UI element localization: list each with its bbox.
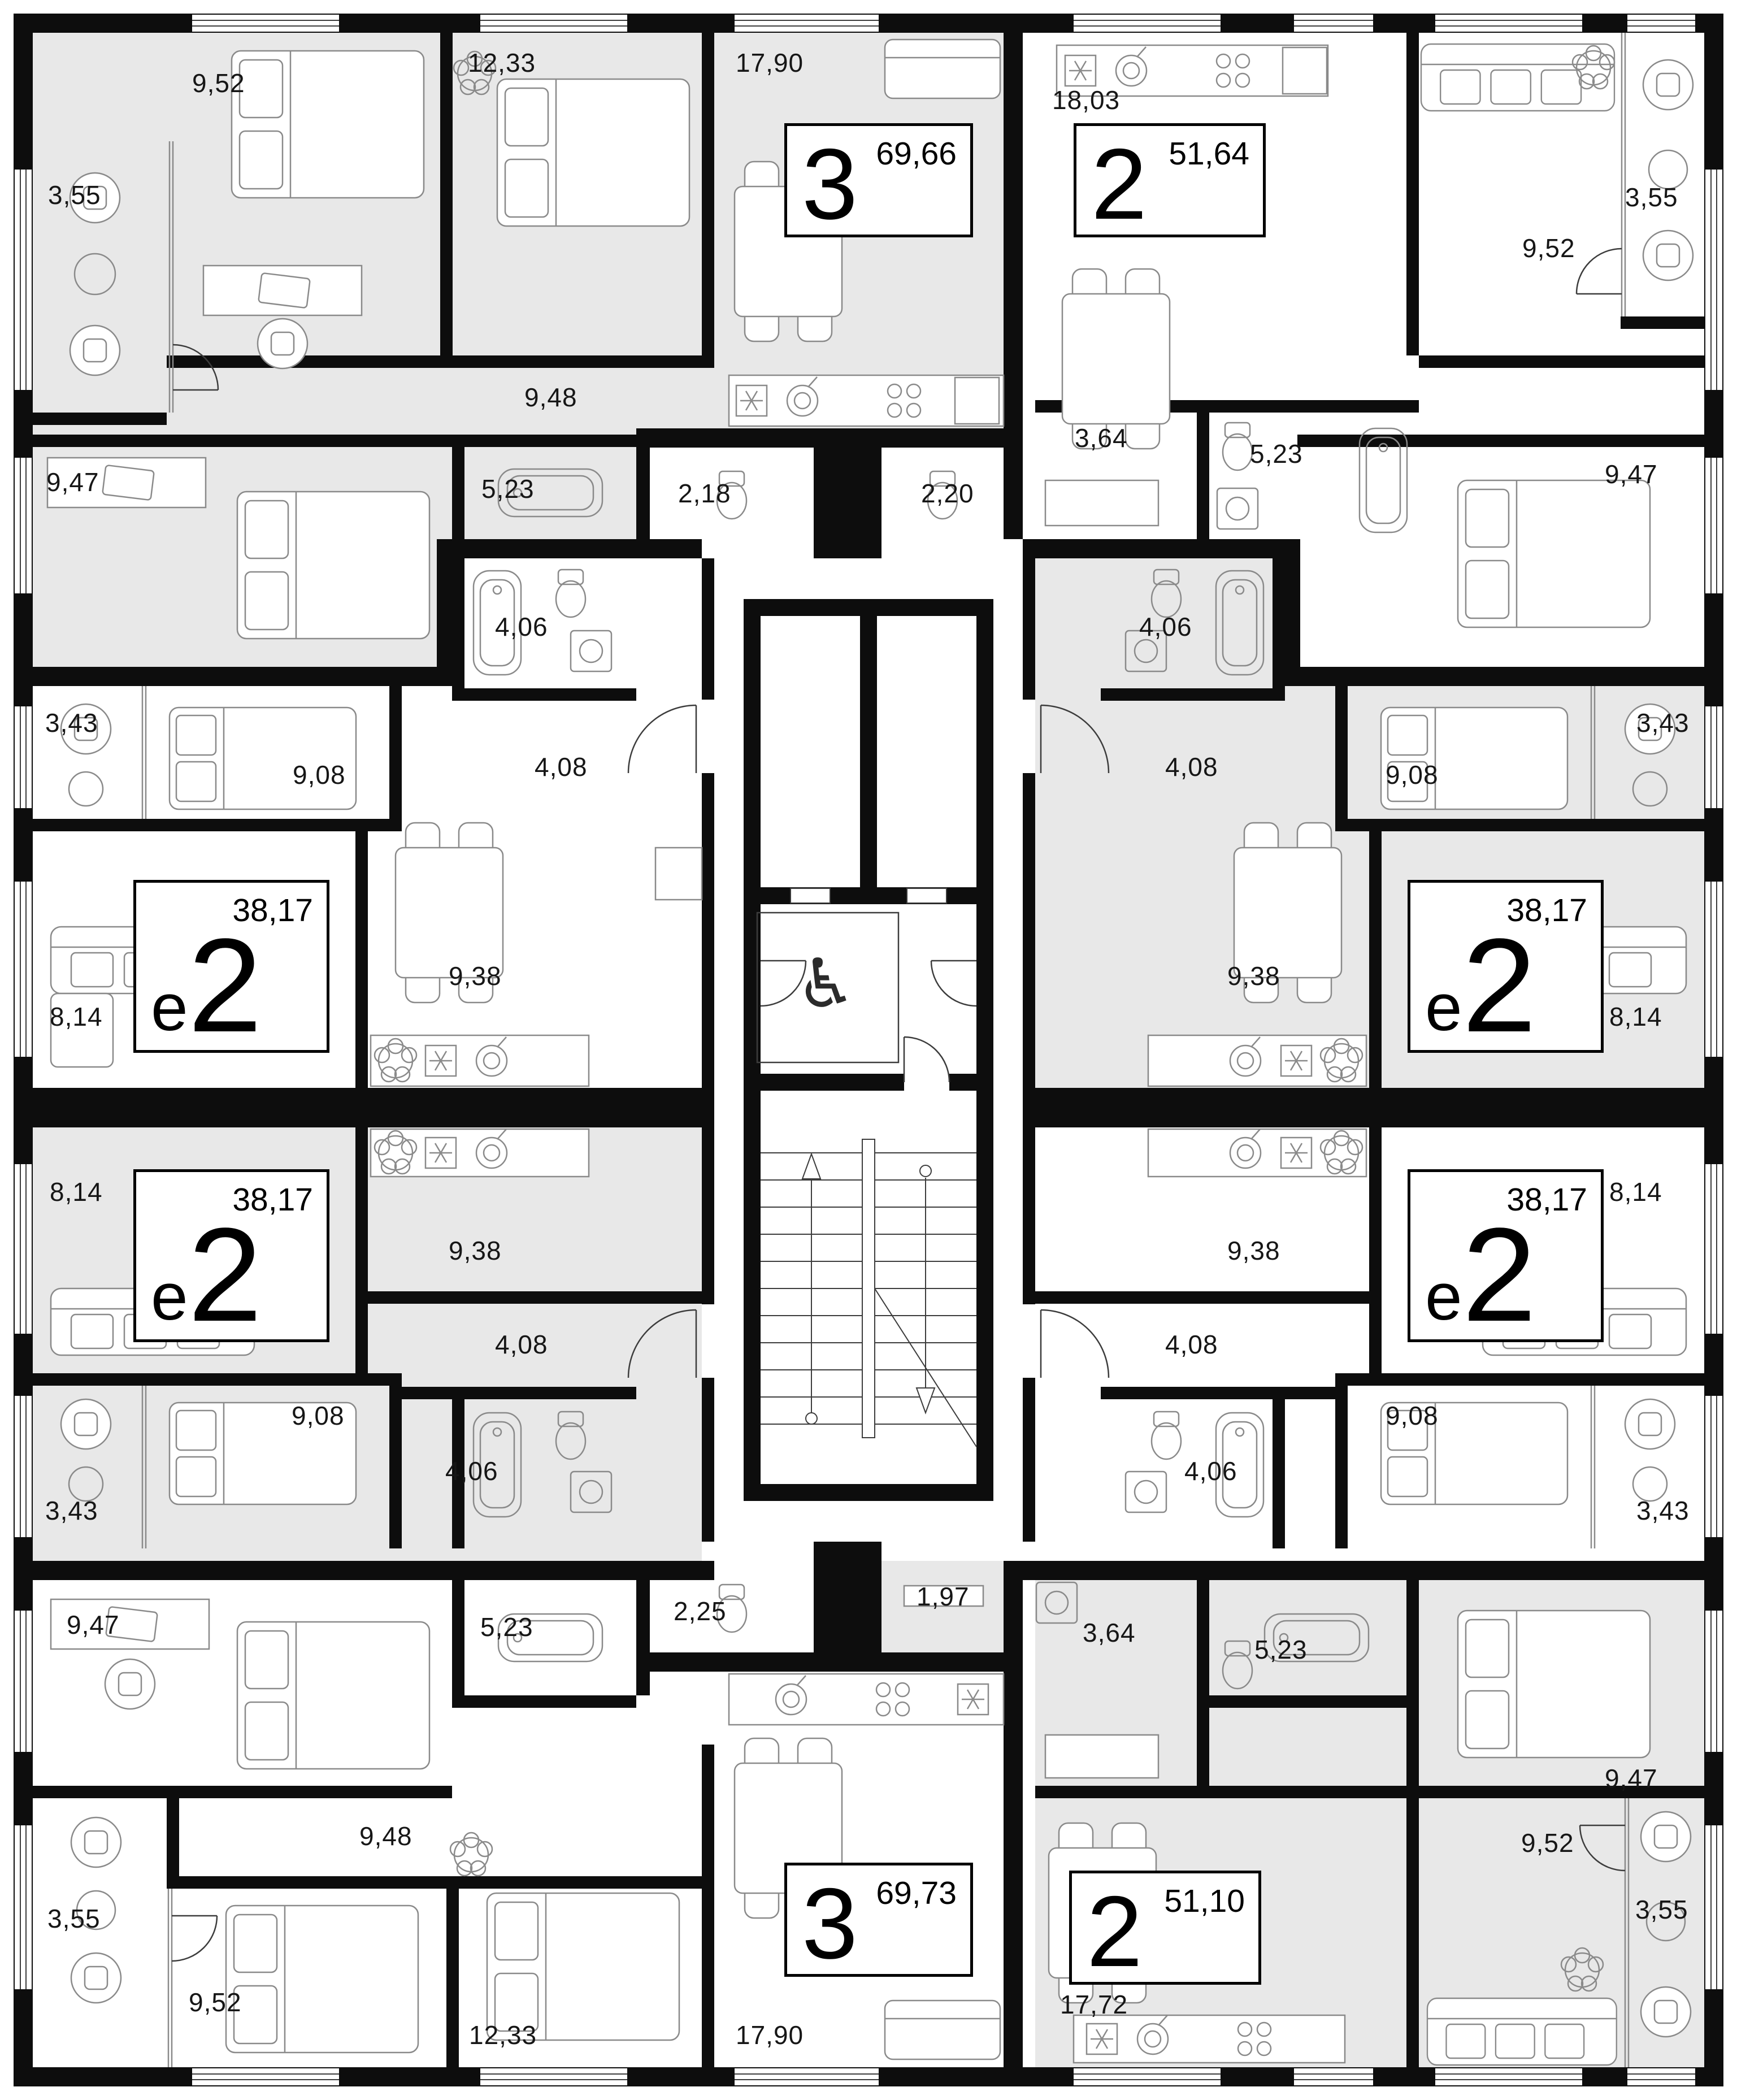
apartment-label-box: е2 38,17 [133,1169,329,1342]
room-area-label: 8,14 [50,1001,103,1032]
room-area-label: 8,14 [1609,1001,1662,1032]
room-area-label: 5,23 [1250,439,1303,469]
room-area-label: 4,06 [445,1456,498,1486]
room-area-label: 2,18 [678,478,731,509]
room-area-label: 9,38 [1227,1235,1280,1266]
stairs [761,1139,976,1447]
room-area-label: 4,08 [1165,752,1218,782]
apartment-area: 38,17 [232,892,313,929]
apartment-type: 2 [1462,931,1536,1041]
room-area-label: 9,47 [1605,1763,1658,1794]
apartment-type: 3 [802,1882,858,1965]
elevator-door [791,888,946,903]
room-area-label: 9,52 [1522,233,1575,263]
room-area-label: 9,48 [359,1821,412,1851]
room-area-label: 12,33 [468,47,536,78]
room-area-label: 3,43 [45,708,98,738]
room-area-label: 9,47 [1605,459,1658,489]
room-area-label: 3,55 [48,180,101,210]
room-area-label: 4,08 [495,1329,548,1360]
sofa-icon [1427,1998,1617,2065]
apartment-label-box: 2 51,64 [1074,123,1266,237]
apartment-label-box: 3 69,66 [784,123,973,237]
wardrobe-icon [1045,480,1158,526]
room-area-label: 9,47 [46,467,99,497]
apartment-area: 38,17 [1506,892,1587,929]
room-area-label: 12,33 [469,2020,537,2050]
room-area-label: 2,20 [921,478,974,509]
apartment-type: 2 [1462,1221,1536,1330]
room-area-label: 4,06 [495,611,548,642]
room-area-label: 3,55 [47,1903,101,1934]
apartment-area: 69,73 [876,1875,957,1912]
bed-icon [1458,1611,1650,1758]
wheelchair-icon: ♿ [796,945,857,1023]
apartment-label-box: е2 38,17 [1408,880,1604,1053]
room-area-label: 9,52 [192,68,245,98]
apartment-type: 2 [188,1221,262,1330]
bed-icon [497,79,689,226]
room-area-label: 4,08 [1165,1329,1218,1360]
room-area-label: 3,43 [1636,708,1690,738]
sofa-icon [1421,44,1614,111]
room-area-label: 9,08 [293,760,346,790]
bed-icon [226,1906,418,2053]
room-area-label: 5,23 [1254,1634,1308,1665]
bathtub-icon [1360,428,1407,532]
room-area-label: 4,06 [1139,611,1192,642]
room-area-label: 8,14 [50,1177,103,1207]
bed-icon [232,51,424,198]
room-area-label: 9,48 [524,382,577,413]
bed-icon [1458,480,1650,627]
room-area-label: 17,72 [1060,1989,1128,2020]
room-area-label: 3,55 [1625,182,1678,212]
washer-icon [1217,488,1258,529]
room-area-label: 9,38 [1227,961,1280,991]
room-area-label: 9,38 [449,1235,502,1266]
apartment-label-box: е2 38,17 [1408,1169,1604,1342]
apartment-area: 51,64 [1169,135,1249,172]
room-area-label: 3,64 [1075,423,1128,453]
room-area-label: 3,64 [1083,1617,1136,1648]
apartment-label-box: 2 51,10 [1069,1871,1261,1985]
room-area-label: 3,43 [45,1495,98,1526]
bed-icon [237,1622,429,1769]
room-area-label: 9,52 [189,1987,242,2017]
room-area-label: 3,55 [1635,1894,1688,1925]
desk-icon [203,266,362,315]
apartment-type-prefix: е [1425,1270,1462,1325]
room-area-label: 9,08 [292,1400,345,1431]
floor-plan: ♿ 9,52 3,55 12,33 17,90 9,48 9,47 5,23 2… [0,0,1737,2100]
bed-icon [487,1893,679,2040]
apartment-type-prefix: е [151,980,188,1035]
sofa-icon [885,2001,1000,2059]
bed-icon [170,708,356,809]
dining-table-icon [1062,269,1170,449]
wardrobe-icon [1045,1735,1158,1778]
bed-icon [237,492,429,639]
apartment-area: 38,17 [1506,1181,1587,1218]
room-area-label: 17,90 [736,47,804,78]
apartment-area: 51,10 [1164,1882,1245,1920]
room-area-label: 5,23 [481,474,535,504]
sofa-icon [885,40,1000,98]
apartment-label-box: 3 69,73 [784,1863,973,1977]
room-area-label: 9,38 [449,961,502,991]
hob-vent-icon [736,385,767,416]
room-area-label: 9,08 [1386,760,1439,790]
apartment-type-prefix: е [151,1270,188,1325]
room-area-label: 17,90 [736,2020,804,2050]
room-area-label: 18,03 [1052,85,1120,115]
apartment-type: 2 [188,931,262,1041]
room-area-label: 3,43 [1636,1495,1690,1526]
room-area-label: 9,47 [67,1609,120,1640]
room-area-label: 8,14 [1609,1177,1662,1207]
apartment-type: 2 [1087,1890,1143,1973]
room-area-label: 9,52 [1521,1828,1574,1858]
room-area-label: 2,25 [674,1596,727,1626]
apartment-type: 3 [802,143,858,225]
bed-icon [1381,708,1567,809]
apartment-type-prefix: е [1425,980,1462,1035]
room-area-label: 1,97 [917,1581,970,1612]
room-area-label: 4,06 [1184,1456,1237,1486]
room-area-label: 9,08 [1386,1400,1439,1431]
plant-icon [1561,1948,1603,1991]
apartment-label-box: е2 38,17 [133,880,329,1053]
room-area-label: 4,08 [535,752,588,782]
washer-icon [1036,1582,1077,1623]
apartment-area: 69,66 [876,135,957,172]
room-area-label: 5,23 [480,1612,533,1642]
apartment-area: 38,17 [232,1181,313,1218]
apartment-type: 2 [1091,143,1147,225]
